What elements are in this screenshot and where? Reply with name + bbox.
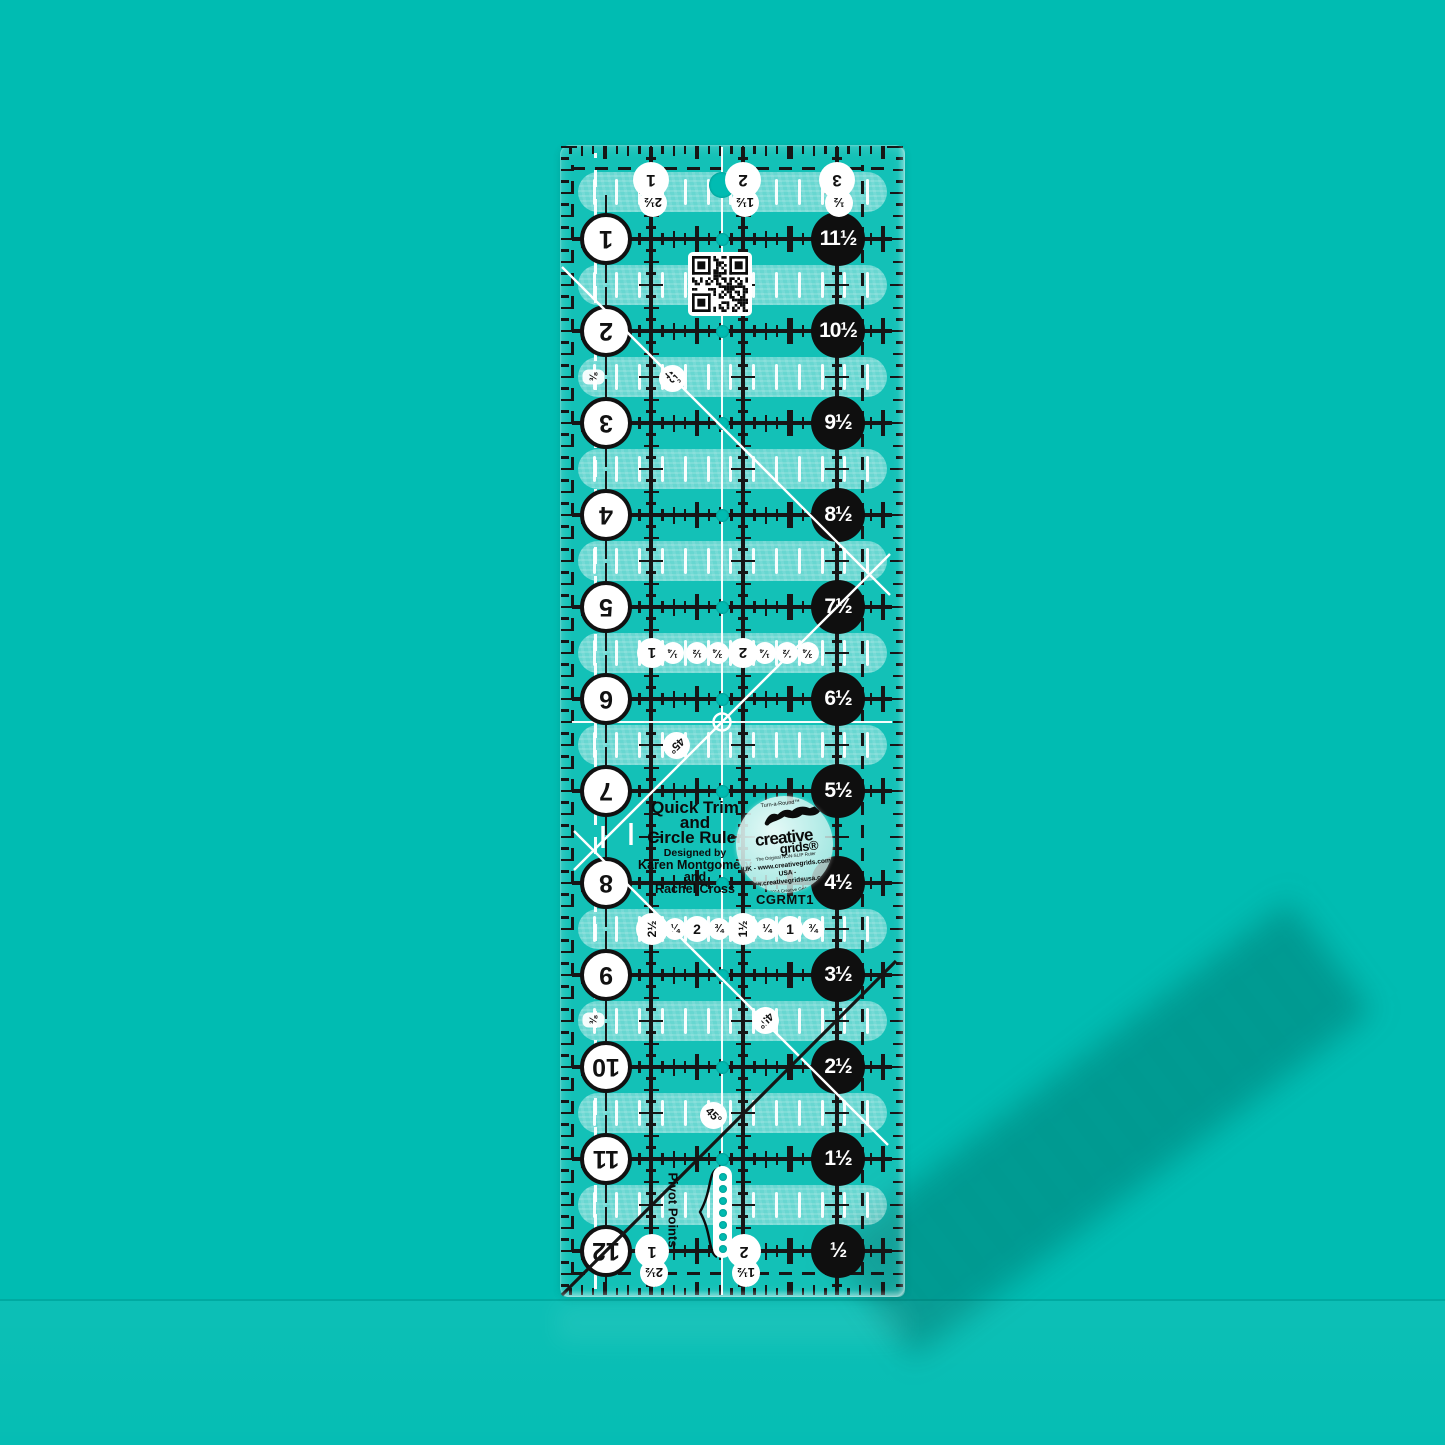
pivot-hole bbox=[716, 785, 729, 798]
right-scale-number: 1½ bbox=[811, 1132, 865, 1186]
ruler-tick bbox=[673, 1059, 676, 1076]
ruler-tick bbox=[646, 1054, 656, 1057]
edge-tick-left bbox=[561, 847, 569, 849]
edge-tick-top bbox=[859, 146, 861, 156]
ruler-tick bbox=[661, 969, 664, 981]
ruler-tick bbox=[765, 599, 768, 616]
pivot-strip-hole bbox=[719, 1233, 727, 1241]
ruler-tick bbox=[646, 456, 656, 459]
edge-tick-left bbox=[561, 1066, 577, 1068]
bar-quarter-mark bbox=[798, 1100, 801, 1126]
ruler-tick bbox=[646, 686, 656, 689]
ruler-tick bbox=[870, 785, 873, 797]
edge-tick-top bbox=[627, 146, 629, 156]
left-column-tick bbox=[605, 195, 608, 213]
right-scale-number: 11½ bbox=[811, 212, 865, 266]
ruler-tick bbox=[753, 233, 756, 245]
edge-tick-left bbox=[561, 157, 569, 159]
bar-quarter-mark bbox=[798, 548, 801, 574]
ruler-tick bbox=[673, 507, 676, 524]
ruler-tick bbox=[776, 509, 779, 521]
pivot-strip-hole bbox=[719, 1209, 727, 1217]
left-scale-number: 10 bbox=[580, 1041, 632, 1093]
ruler-tick bbox=[738, 318, 748, 321]
edge-tick-left bbox=[561, 893, 569, 895]
bar-quarter-mark bbox=[821, 364, 824, 390]
edge-tick-left bbox=[561, 1169, 569, 1171]
ruler-tick bbox=[825, 652, 849, 655]
edge-tick-top bbox=[776, 146, 778, 154]
ruler-tick bbox=[736, 537, 751, 540]
edge-tick-left bbox=[561, 1204, 574, 1206]
bar-quarter-mark bbox=[798, 1008, 801, 1034]
ruler-tick bbox=[708, 601, 711, 613]
ruler-tick bbox=[638, 1061, 641, 1073]
ruler-tick bbox=[738, 1008, 748, 1011]
edge-tick-left bbox=[561, 663, 569, 665]
ruler-tick bbox=[646, 1169, 656, 1172]
ruler-tick bbox=[644, 629, 659, 632]
ruler-tick bbox=[646, 318, 656, 321]
mid-fraction-label: ½ bbox=[776, 642, 798, 664]
ruler-tick bbox=[646, 985, 656, 988]
bar-quarter-mark bbox=[707, 1192, 710, 1218]
edge-tick-left bbox=[561, 767, 571, 769]
edge-tick-left bbox=[561, 744, 574, 746]
edge-tick-left bbox=[561, 1181, 571, 1183]
edge-tick-left bbox=[561, 1077, 569, 1079]
ruler-tick bbox=[832, 755, 842, 758]
ruler-tick bbox=[832, 1100, 842, 1103]
ruler-tick bbox=[673, 599, 676, 616]
ruler-tick bbox=[738, 571, 748, 574]
left-scale-number: 11 bbox=[580, 1133, 632, 1185]
ruler-tick bbox=[832, 364, 842, 367]
edge-tick-left bbox=[561, 1031, 569, 1033]
ruler-tick bbox=[696, 1238, 699, 1264]
three-eighths-label: ⅜ bbox=[582, 1013, 604, 1028]
edge-tick-left bbox=[561, 732, 569, 734]
ruler-tick bbox=[708, 417, 711, 429]
edge-tick-top bbox=[730, 146, 732, 154]
ruler-tick bbox=[870, 325, 873, 337]
left-scale-number: 9 bbox=[580, 949, 632, 1001]
ruler-tick bbox=[765, 415, 768, 432]
ruler-tick bbox=[832, 456, 842, 459]
ruler-tick bbox=[696, 410, 699, 436]
ruler-tick bbox=[738, 525, 748, 528]
left-column-tick bbox=[605, 725, 608, 743]
ruler-tick bbox=[882, 502, 885, 528]
edge-tick-left bbox=[561, 215, 571, 217]
ruler-cast-shadow bbox=[830, 900, 1372, 1356]
ruler-tick bbox=[646, 387, 656, 390]
ruler-tick bbox=[646, 1215, 656, 1218]
lower-fraction-label: ¼ bbox=[756, 918, 778, 940]
ruler-tick bbox=[639, 284, 663, 287]
edge-tick-left bbox=[561, 284, 574, 286]
ruler-tick bbox=[646, 1031, 656, 1034]
ruler-tick bbox=[825, 1020, 849, 1023]
bar-quarter-mark bbox=[866, 456, 869, 482]
ruler-tick bbox=[708, 233, 711, 245]
ruler-tick bbox=[730, 1153, 733, 1165]
bar-quarter-mark bbox=[798, 364, 801, 390]
ruler-tick bbox=[673, 967, 676, 984]
edge-tick-left bbox=[561, 249, 569, 251]
ruler-tick bbox=[646, 548, 656, 551]
ruler-tick bbox=[736, 445, 751, 448]
ruler-tick bbox=[684, 1153, 687, 1165]
ruler-tick bbox=[646, 1100, 656, 1103]
edge-tick-left bbox=[561, 146, 577, 148]
ruler-tick bbox=[730, 785, 733, 797]
left-column-tick bbox=[605, 287, 608, 305]
bar-quarter-mark bbox=[707, 548, 710, 574]
bar-quarter-mark bbox=[798, 456, 801, 482]
edge-tick-left bbox=[561, 502, 569, 504]
bar-quarter-mark bbox=[707, 1008, 710, 1034]
edge-tick-left bbox=[561, 997, 571, 999]
ruler-tick bbox=[730, 417, 733, 429]
left-column-tick bbox=[605, 541, 608, 559]
edge-tick-left bbox=[561, 180, 569, 182]
edge-tick-left bbox=[561, 824, 569, 826]
ruler-tick bbox=[738, 456, 748, 459]
ruler-tick bbox=[696, 962, 699, 988]
ruler-tick bbox=[708, 1153, 711, 1165]
edge-tick-left bbox=[561, 1261, 569, 1263]
bar-quarter-mark bbox=[684, 1100, 687, 1126]
edge-tick-left bbox=[561, 295, 569, 297]
ruler-tick bbox=[673, 415, 676, 432]
bar-quarter-mark bbox=[775, 732, 778, 758]
right-scale-number: 3½ bbox=[811, 948, 865, 1002]
bar-quarter-mark bbox=[775, 548, 778, 574]
bar-quarter-mark bbox=[775, 1192, 778, 1218]
ruler-tick bbox=[738, 778, 748, 781]
ruler-tick bbox=[646, 1192, 656, 1195]
edge-tick-left bbox=[561, 261, 571, 263]
edge-tick-top bbox=[882, 146, 884, 159]
qr-code bbox=[688, 252, 752, 316]
right-scale-number: ½ bbox=[811, 1224, 865, 1278]
ruler-tick bbox=[870, 877, 873, 889]
bar-quarter-mark bbox=[821, 1100, 824, 1126]
ruler-tick bbox=[753, 1061, 756, 1073]
ruler-tick bbox=[673, 231, 676, 248]
ruler-tick bbox=[646, 341, 656, 344]
bar-quarter-mark bbox=[615, 1100, 618, 1126]
ruler-tick bbox=[790, 502, 793, 528]
ruler-tick bbox=[661, 601, 664, 613]
left-scale-number: 1 bbox=[580, 213, 632, 265]
ruler-tick bbox=[646, 1008, 656, 1011]
edge-tick-top bbox=[604, 146, 606, 159]
edge-tick-left bbox=[561, 836, 574, 838]
ruler-tick bbox=[870, 417, 873, 429]
ruler-tick bbox=[638, 1153, 641, 1165]
ruler-tick bbox=[684, 417, 687, 429]
edge-tick-left bbox=[561, 882, 577, 884]
edge-tick-left bbox=[561, 272, 569, 274]
top-half-number: 2½ bbox=[639, 189, 667, 217]
ruler-tick bbox=[832, 732, 842, 735]
ruler-tick bbox=[731, 1112, 755, 1115]
pivot-strip-hole bbox=[719, 1173, 727, 1181]
edge-tick-left bbox=[561, 686, 569, 688]
edge-tick-top bbox=[638, 146, 640, 154]
left-column-tick bbox=[605, 563, 608, 581]
pivot-points-label-wrap: Pivot Points bbox=[666, 1155, 680, 1265]
bar-quarter-mark bbox=[684, 272, 687, 298]
edge-tick-top bbox=[847, 146, 849, 154]
pivot-points-label: Pivot Points bbox=[666, 1172, 681, 1247]
ruler-tick bbox=[644, 307, 659, 310]
edge-tick-left bbox=[561, 1215, 569, 1217]
ruler-tick bbox=[731, 1204, 755, 1207]
edge-tick-left bbox=[561, 859, 571, 861]
left-column-tick bbox=[605, 1023, 608, 1041]
ruler-tick bbox=[870, 233, 873, 245]
ruler-tick bbox=[765, 323, 768, 340]
pivot-hole bbox=[716, 693, 729, 706]
ruler-tick bbox=[882, 686, 885, 712]
ruler-tick bbox=[638, 785, 641, 797]
ruler-tick bbox=[765, 967, 768, 984]
ruler-tick bbox=[730, 325, 733, 337]
bar-quarter-mark bbox=[866, 640, 869, 666]
edge-tick-left bbox=[561, 790, 577, 792]
edge-tick-left bbox=[561, 1008, 569, 1010]
edge-tick-left bbox=[561, 387, 569, 389]
bar-quarter-mark bbox=[775, 179, 778, 205]
right-scale-number: 9½ bbox=[811, 396, 865, 450]
bar-quarter-mark bbox=[821, 1008, 824, 1034]
ruler-tick bbox=[832, 548, 842, 551]
ruler-tick bbox=[738, 732, 748, 735]
ruler-tick bbox=[661, 1061, 664, 1073]
edge-tick-left bbox=[561, 1250, 577, 1252]
edge-tick-top bbox=[616, 146, 618, 154]
ruler-tick bbox=[753, 693, 756, 705]
ruler-tick bbox=[753, 969, 756, 981]
left-column-tick bbox=[605, 1185, 608, 1203]
pivot-hole bbox=[716, 1061, 729, 1074]
edge-tick-left bbox=[561, 1123, 569, 1125]
right-scale-number: 7½ bbox=[811, 580, 865, 634]
edge-tick-left bbox=[561, 410, 569, 412]
edge-tick-left bbox=[561, 399, 571, 401]
ruler-tick bbox=[644, 675, 659, 678]
bar-quarter-mark bbox=[775, 456, 778, 482]
acrylic-edge-bottom bbox=[560, 1290, 905, 1297]
edge-tick-left bbox=[561, 537, 571, 539]
edge-tick-left bbox=[561, 870, 569, 872]
ruler-tick bbox=[708, 325, 711, 337]
bar-quarter-mark bbox=[821, 272, 824, 298]
ruler-tick bbox=[644, 1043, 659, 1046]
ruler-tick bbox=[738, 410, 748, 413]
edge-tick-left bbox=[561, 548, 569, 550]
left-scale-number: 4 bbox=[580, 489, 632, 541]
edge-tick-left bbox=[561, 1192, 569, 1194]
edge-tick-left bbox=[561, 1227, 571, 1229]
edge-tick-left bbox=[561, 307, 571, 309]
ruler-tick bbox=[832, 640, 842, 643]
left-column-tick bbox=[605, 1115, 608, 1133]
ruler-tick bbox=[832, 479, 842, 482]
ruler-tick bbox=[738, 387, 748, 390]
right-scale-number: 2½ bbox=[811, 1040, 865, 1094]
edge-tick-left bbox=[561, 433, 569, 435]
ruler-tick bbox=[730, 693, 733, 705]
edge-tick-left bbox=[561, 640, 569, 642]
ruler-tick bbox=[730, 509, 733, 521]
bar-quarter-mark bbox=[866, 1008, 869, 1034]
bar-quarter-mark bbox=[821, 640, 824, 666]
ruler-tick bbox=[832, 939, 842, 942]
ruler-tick bbox=[832, 387, 842, 390]
quilting-ruler: 12345678910111211½10½9½8½7½6½5½4½3½2½1½½… bbox=[560, 145, 905, 1297]
ruler-tick bbox=[661, 1153, 664, 1165]
ruler-tick bbox=[832, 272, 842, 275]
left-column-tick bbox=[605, 747, 608, 765]
ruler-tick bbox=[765, 1151, 768, 1168]
product-photo-scene: 12345678910111211½10½9½8½7½6½5½4½3½2½1½½… bbox=[0, 0, 1445, 1445]
bar-quarter-mark bbox=[821, 1192, 824, 1218]
ruler-tick bbox=[738, 985, 748, 988]
ruler-tick bbox=[646, 433, 656, 436]
left-column-tick bbox=[605, 357, 608, 375]
left-scale-number: 6 bbox=[580, 673, 632, 725]
edge-tick-top bbox=[790, 146, 792, 159]
ruler-tick bbox=[832, 1008, 842, 1011]
edge-tick-left bbox=[561, 226, 569, 228]
edge-tick-left bbox=[561, 1158, 577, 1160]
ruler-tick bbox=[644, 951, 659, 954]
ruler-tick bbox=[684, 785, 687, 797]
ruler-tick bbox=[825, 744, 849, 747]
edge-tick-left bbox=[561, 1273, 571, 1275]
ruler-tick bbox=[708, 969, 711, 981]
left-column-tick bbox=[605, 1001, 608, 1019]
ruler-tick bbox=[753, 601, 756, 613]
ruler-tick bbox=[832, 571, 842, 574]
ruler-tick bbox=[738, 433, 748, 436]
ruler-tick bbox=[882, 1238, 885, 1264]
edge-tick-left bbox=[561, 813, 571, 815]
ruler-tick bbox=[646, 755, 656, 758]
bottom-half-number: 2½ bbox=[640, 1259, 668, 1287]
left-scale-number: 7 bbox=[580, 765, 632, 817]
bar-quarter-mark bbox=[615, 916, 618, 942]
ruler-tick bbox=[646, 226, 656, 229]
ruler-tick bbox=[731, 376, 755, 379]
edge-tick-top bbox=[813, 146, 815, 156]
ruler-tick bbox=[776, 785, 779, 797]
ruler-tick bbox=[870, 601, 873, 613]
ruler-tick bbox=[639, 1204, 663, 1207]
ruler-tick bbox=[738, 1123, 748, 1126]
bar-quarter-mark bbox=[798, 272, 801, 298]
ruler-tick bbox=[708, 1061, 711, 1073]
ruler-tick bbox=[738, 364, 748, 367]
ruler-tick bbox=[644, 1135, 659, 1138]
ruler-tick bbox=[684, 1061, 687, 1073]
bar-quarter-mark bbox=[707, 732, 710, 758]
ruler-tick bbox=[790, 318, 793, 344]
ruler-tick bbox=[646, 617, 656, 620]
ruler-tick bbox=[882, 1054, 885, 1080]
ruler-markings-layer: 12345678910111211½10½9½8½7½6½5½4½3½2½1½½… bbox=[560, 145, 905, 1297]
ruler-tick bbox=[753, 509, 756, 521]
pivot-strip-hole bbox=[719, 1185, 727, 1193]
edge-tick-left bbox=[561, 1043, 571, 1045]
ruler-tick bbox=[832, 1031, 842, 1034]
pivot-hole bbox=[716, 1153, 729, 1166]
ruler-tick bbox=[646, 272, 656, 275]
ruler-tick bbox=[646, 962, 656, 965]
ruler-tick bbox=[646, 502, 656, 505]
ruler-tick bbox=[802, 325, 805, 337]
bar-quarter-mark bbox=[615, 732, 618, 758]
edge-tick-left bbox=[561, 203, 569, 205]
ruler-tick bbox=[802, 417, 805, 429]
ruler-tick bbox=[646, 1123, 656, 1126]
left-scale-number: 2 bbox=[580, 305, 632, 357]
ruler-tick bbox=[738, 1031, 748, 1034]
ruler-tick bbox=[802, 1061, 805, 1073]
bar-quarter-mark bbox=[798, 732, 801, 758]
ruler-tick bbox=[736, 399, 751, 402]
left-column-tick bbox=[605, 909, 608, 927]
edge-tick-left bbox=[561, 456, 569, 458]
ruler-tick bbox=[644, 767, 659, 770]
ruler-tick bbox=[790, 226, 793, 252]
pivot-hole bbox=[716, 233, 729, 246]
edge-tick-top bbox=[836, 146, 838, 162]
acrylic-edge-right bbox=[898, 145, 905, 1297]
ruler-tick bbox=[644, 1181, 659, 1184]
ruler-tick bbox=[684, 233, 687, 245]
ruler-tick bbox=[832, 1192, 842, 1195]
edge-tick-left bbox=[561, 445, 571, 447]
ruler-tick bbox=[870, 1245, 873, 1257]
pivot-hole bbox=[716, 417, 729, 430]
bar-quarter-mark bbox=[615, 364, 618, 390]
ruler-tick bbox=[661, 785, 664, 797]
edge-tick-left bbox=[561, 1238, 569, 1240]
ruler-tick bbox=[730, 969, 733, 981]
left-column-tick bbox=[605, 471, 608, 489]
left-column-tick bbox=[605, 839, 608, 857]
edge-tick-left bbox=[561, 169, 571, 171]
pivot-hole bbox=[716, 509, 729, 522]
left-column-tick bbox=[605, 449, 608, 467]
edge-tick-left bbox=[561, 755, 569, 757]
ruler-tick bbox=[696, 318, 699, 344]
pivot-hole bbox=[716, 969, 729, 982]
ruler-tick bbox=[802, 1245, 805, 1257]
ruler-tick bbox=[825, 560, 849, 563]
edge-tick-left bbox=[561, 1112, 574, 1114]
edge-tick-left bbox=[561, 629, 571, 631]
ruler-tick bbox=[644, 491, 659, 494]
ruler-tick bbox=[870, 509, 873, 521]
ruler-tick bbox=[736, 1043, 751, 1046]
right-scale-number: 8½ bbox=[811, 488, 865, 542]
